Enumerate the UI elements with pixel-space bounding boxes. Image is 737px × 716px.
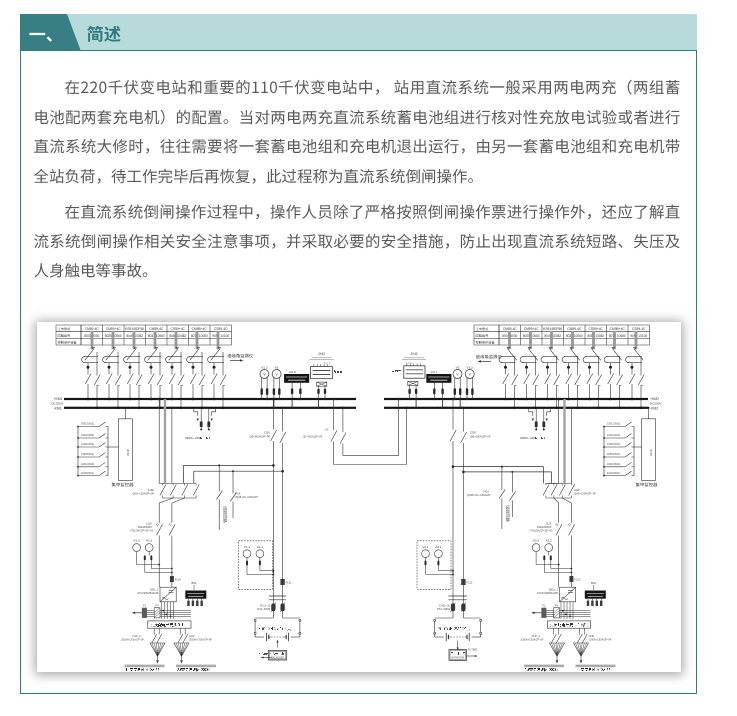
svg-text:QA9~125A/2P~0F: QA9~125A/2P~0F bbox=[132, 492, 154, 496]
svg-text:11002(S04): 11002(S04) bbox=[607, 472, 620, 475]
svg-text:QA5~125A/2P~0F: QA5~125A/2P~0F bbox=[574, 492, 596, 496]
svg-text:10402(S04): 10402(S04) bbox=[607, 434, 620, 437]
svg-text:11002(S04): 11002(S04) bbox=[81, 472, 94, 475]
svg-text:8079 10080: 8079 10080 bbox=[191, 334, 208, 338]
svg-text:-KM1: -KM1 bbox=[54, 406, 62, 410]
svg-text:CK: CK bbox=[325, 428, 329, 432]
svg-text:BAT.ROOM: BAT.ROOM bbox=[452, 657, 464, 660]
svg-text:CM59-4C: CM59-4C bbox=[85, 327, 100, 331]
svg-text:B02: B02 bbox=[192, 581, 197, 585]
svg-text:JP40: JP40 bbox=[126, 449, 130, 456]
svg-text:FL02: FL02 bbox=[175, 578, 182, 582]
svg-text:1B901L.1909: 1B901L.1909 bbox=[185, 436, 201, 440]
svg-text:KS51/8DF5K: KS51/8DF5K bbox=[543, 327, 563, 331]
svg-text:241K: 241K bbox=[483, 490, 489, 494]
svg-text:FL22: FL22 bbox=[574, 578, 581, 582]
svg-text:CM59+4C: CM59+4C bbox=[524, 327, 540, 331]
svg-text:A?C23(M28111#5: A?C23(M28111#5 bbox=[537, 591, 559, 595]
svg-text:V1.2: V1.2 bbox=[261, 365, 268, 369]
svg-text:)C60A+C63A/2P~0F: )C60A+C63A/2P~0F bbox=[521, 638, 544, 641]
svg-text:132K: 132K bbox=[264, 431, 270, 435]
svg-text:NT2~3(5#4: NT2~3(5#4 bbox=[437, 607, 451, 611]
svg-text:(C60A+C63A/2P~0F: (C60A+C63A/2P~0F bbox=[589, 638, 612, 641]
svg-text:F1: F1 bbox=[543, 603, 547, 607]
svg-text:QS08~0C~C60A/2P: QS08~0C~C60A/2P bbox=[467, 493, 491, 497]
svg-text:8079 10080: 8079 10080 bbox=[609, 334, 626, 338]
svg-text:10012(S02): 10012(S02) bbox=[81, 423, 94, 426]
svg-text:232K: 232K bbox=[470, 431, 476, 435]
svg-text:V: V bbox=[469, 373, 472, 377]
svg-text:V2: V2 bbox=[456, 365, 460, 369]
svg-text:A2.2: A2.2 bbox=[546, 539, 553, 543]
svg-text:CM59+4C: CM59+4C bbox=[106, 327, 122, 331]
svg-text:FL.TB02: FL.TB02 bbox=[468, 649, 478, 652]
svg-text:JX42: JX42 bbox=[410, 352, 417, 356]
svg-text:10012(S02): 10012(S02) bbox=[607, 423, 620, 426]
svg-text:CM59-4C: CM59-4C bbox=[149, 327, 164, 331]
svg-text:QB~600A/2P~0F: QB~600A/2P~0F bbox=[250, 435, 271, 439]
svg-text:(C60A+C63A/2P~0F: (C60A+C63A/2P~0F bbox=[189, 638, 212, 641]
svg-text:BALANCER: BALANCER bbox=[271, 656, 284, 659]
svg-text:CS59+4C: CS59+4C bbox=[589, 327, 604, 331]
svg-text:9099 10100: 9099 10100 bbox=[212, 334, 229, 338]
svg-text:CM59-4C: CM59-4C bbox=[503, 327, 518, 331]
svg-text:B02: B02 bbox=[591, 581, 596, 585]
svg-text:125K: 125K bbox=[148, 488, 154, 492]
svg-text:8031 10060: 8031 10060 bbox=[566, 334, 583, 338]
svg-text:FU21~22: FU21~22 bbox=[439, 604, 450, 608]
svg-text:JX42: JX42 bbox=[318, 352, 325, 356]
svg-text:DC220V: DC220V bbox=[52, 402, 63, 406]
svg-text:10012(S04): 10012(S04) bbox=[81, 463, 94, 466]
svg-text:FL11: FL11 bbox=[286, 581, 292, 585]
svg-text:FL21: FL21 bbox=[466, 581, 473, 585]
svg-text:JP40: JP40 bbox=[649, 449, 653, 456]
svg-text:1U1.1: 1U1.1 bbox=[431, 370, 439, 374]
svg-text:CM9B+4C: CM9B+4C bbox=[192, 327, 208, 331]
svg-text:A1.1: A1.1 bbox=[257, 545, 264, 549]
svg-text:CS59-4C: CS59-4C bbox=[632, 327, 646, 331]
svg-text:1U1.D: 1U1.D bbox=[289, 370, 297, 374]
svg-text:8060 10082: 8060 10082 bbox=[169, 334, 186, 338]
svg-text:-KM2: -KM2 bbox=[650, 406, 658, 410]
svg-text:CS59+4C: CS59+4C bbox=[171, 327, 186, 331]
svg-text:V2.1: V2.1 bbox=[422, 545, 429, 549]
svg-text:KS51/8DF5K: KS51/8DF5K bbox=[125, 327, 145, 331]
svg-text:10502(S04): 10502(S04) bbox=[81, 453, 94, 456]
svg-text:V: V bbox=[275, 373, 278, 377]
svg-text:V2.2: V2.2 bbox=[533, 539, 540, 543]
svg-text:~7N125A/2P~0F~63: ~7N125A/2P~0F~63 bbox=[529, 528, 553, 532]
svg-text:V1: V1 bbox=[275, 365, 279, 369]
svg-text:10012(S04): 10012(S04) bbox=[607, 463, 620, 466]
svg-text:1B901L.1909: 1B901L.1909 bbox=[520, 436, 536, 440]
svg-text:QS08~0C~C60A/2P: QS08~0C~C60A/2P bbox=[235, 495, 259, 499]
svg-text:2B01_1: 2B01_1 bbox=[549, 588, 559, 592]
svg-text:FU11~12: FU11~12 bbox=[260, 604, 271, 608]
svg-text:V1.1: V1.1 bbox=[244, 545, 251, 549]
svg-text:CM59-4C: CM59-4C bbox=[567, 327, 582, 331]
svg-text:DB1_1: DB1_1 bbox=[150, 588, 159, 592]
svg-text:141K: 141K bbox=[235, 492, 241, 496]
svg-text:10402(S04): 10402(S04) bbox=[81, 434, 94, 437]
svg-text:V: V bbox=[263, 373, 266, 377]
svg-text:QB~600A/2P~0F: QB~600A/2P~0F bbox=[470, 435, 491, 439]
svg-text:+KM2: +KM2 bbox=[650, 397, 659, 401]
svg-text:9099 10100: 9099 10100 bbox=[630, 334, 647, 338]
svg-text:V2.2: V2.2 bbox=[467, 365, 474, 369]
svg-text:FV: FV bbox=[156, 603, 160, 607]
svg-text:FV: FV bbox=[555, 603, 559, 607]
svg-text:ATC23(M28111#5: ATC23(M28111#5 bbox=[137, 591, 159, 595]
svg-text:)C60A+C63A/2P~0F: )C60A+C63A/2P~0F bbox=[121, 638, 144, 641]
svg-text:10492(S04): 10492(S04) bbox=[607, 443, 620, 446]
svg-text:8060 10082: 8060 10082 bbox=[587, 334, 604, 338]
svg-text:10502(S04): 10502(S04) bbox=[607, 453, 620, 456]
svg-text:3SE1000MX: 3SE1000MX bbox=[137, 525, 152, 529]
svg-text:NT2~3(5#4: NT2~3(5#4 bbox=[257, 607, 271, 611]
svg-text:222K: 222K bbox=[574, 488, 580, 492]
svg-text:CM9B+4C: CM9B+4C bbox=[610, 327, 626, 331]
svg-text:DC220V: DC220V bbox=[650, 402, 661, 406]
svg-text:F1: F1 bbox=[143, 603, 147, 607]
svg-text:V1.2: V1.2 bbox=[134, 539, 141, 543]
svg-text:A2.1: A2.1 bbox=[435, 545, 442, 549]
svg-text:CS59-4C: CS59-4C bbox=[214, 327, 228, 331]
svg-text:QF~6001/2P~0F: QF~6001/2P~0F bbox=[303, 435, 323, 439]
svg-text:10492(S04): 10492(S04) bbox=[81, 443, 94, 446]
svg-text:+KM1: +KM1 bbox=[54, 397, 63, 401]
svg-text:V: V bbox=[456, 373, 459, 377]
svg-text:A1.2: A1.2 bbox=[146, 539, 153, 543]
svg-text:~7N125A/2P~0F~63: ~7N125A/2P~0F~63 bbox=[129, 528, 153, 532]
svg-text:3SE1000MX: 3SE1000MX bbox=[537, 525, 552, 529]
